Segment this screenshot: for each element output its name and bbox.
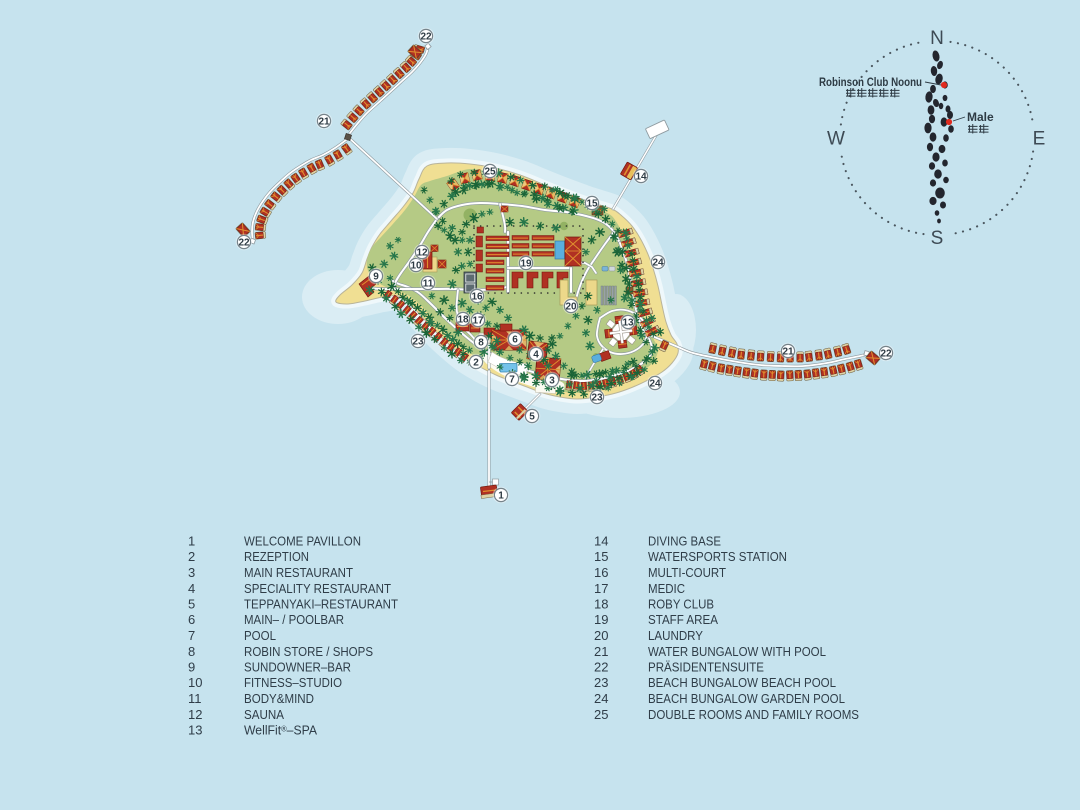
svg-text:5: 5: [529, 411, 535, 422]
svg-text:1: 1: [188, 534, 195, 549]
svg-text:18: 18: [594, 597, 608, 612]
svg-text:WELCOME PAVILLON: WELCOME PAVILLON: [244, 534, 361, 549]
svg-text:1: 1: [498, 490, 504, 501]
svg-text:20: 20: [565, 301, 577, 312]
svg-text:2: 2: [188, 549, 195, 564]
svg-text:TEPPANYAKI–RESTAURANT: TEPPANYAKI–RESTAURANT: [244, 597, 398, 612]
svg-text:DOUBLE ROOMS AND FAMILY ROOMS: DOUBLE ROOMS AND FAMILY ROOMS: [648, 707, 859, 722]
svg-text:24: 24: [652, 257, 664, 268]
svg-text:12: 12: [188, 707, 202, 722]
svg-text:WellFit®–SPA: WellFit®–SPA: [244, 723, 317, 738]
svg-text:N: N: [930, 28, 944, 49]
svg-text:3: 3: [188, 565, 195, 580]
svg-text:13: 13: [188, 723, 202, 738]
svg-text:MAIN RESTAURANT: MAIN RESTAURANT: [244, 565, 353, 580]
svg-text:STAFF AREA: STAFF AREA: [648, 612, 718, 627]
svg-text:MAIN– / POOLBAR: MAIN– / POOLBAR: [244, 612, 344, 627]
svg-text:REZEPTION: REZEPTION: [244, 549, 309, 564]
svg-text:SPECIALITY RESTAURANT: SPECIALITY RESTAURANT: [244, 581, 391, 596]
svg-text:ROBIN STORE / SHOPS: ROBIN STORE / SHOPS: [244, 644, 373, 659]
svg-text:BODY&MIND: BODY&MIND: [244, 691, 314, 706]
svg-text:4: 4: [533, 349, 539, 360]
svg-text:22: 22: [594, 660, 608, 675]
svg-text:11: 11: [188, 691, 202, 706]
svg-text:8: 8: [188, 644, 195, 659]
svg-text:11: 11: [423, 278, 434, 289]
svg-text:PRÄSIDENTENSUITE: PRÄSIDENTENSUITE: [648, 660, 764, 675]
svg-text:W: W: [827, 129, 845, 150]
svg-text:22: 22: [880, 348, 892, 359]
svg-text:6: 6: [512, 334, 518, 345]
svg-text:23: 23: [594, 675, 608, 690]
svg-text:23: 23: [412, 336, 424, 347]
svg-text:22: 22: [420, 31, 432, 42]
svg-text:20: 20: [594, 628, 608, 643]
svg-text:14: 14: [594, 534, 608, 549]
svg-text:12: 12: [416, 247, 428, 258]
svg-text:17: 17: [594, 581, 608, 596]
svg-text:9: 9: [188, 660, 195, 675]
svg-text:17: 17: [472, 315, 484, 326]
svg-text:ROBY CLUB: ROBY CLUB: [648, 597, 714, 612]
svg-text:WATER BUNGALOW WITH POOL: WATER BUNGALOW WITH POOL: [648, 644, 826, 659]
svg-text:25: 25: [594, 707, 608, 722]
svg-text:4: 4: [188, 581, 195, 596]
svg-text:22: 22: [238, 237, 250, 248]
svg-text:3: 3: [549, 375, 555, 386]
svg-text:10: 10: [188, 675, 202, 690]
svg-text:2: 2: [473, 357, 479, 368]
svg-text:18: 18: [457, 314, 469, 325]
svg-text:21: 21: [782, 346, 794, 357]
svg-text:23: 23: [591, 392, 603, 403]
svg-text:13: 13: [622, 317, 634, 328]
svg-text:S: S: [931, 228, 944, 249]
svg-text:9: 9: [373, 271, 379, 282]
svg-text:SUNDOWNER–BAR: SUNDOWNER–BAR: [244, 660, 351, 675]
svg-text:25: 25: [484, 166, 496, 177]
svg-text:10: 10: [410, 260, 422, 271]
svg-text:BEACH BUNGALOW BEACH POOL: BEACH BUNGALOW BEACH POOL: [648, 675, 836, 690]
svg-text:7: 7: [188, 628, 195, 643]
svg-text:BEACH BUNGALOW GARDEN POOL: BEACH BUNGALOW GARDEN POOL: [648, 691, 845, 706]
svg-text:6: 6: [188, 612, 195, 627]
svg-text:Male: Male: [967, 110, 994, 124]
svg-text:21: 21: [318, 116, 330, 127]
svg-text:21: 21: [594, 644, 608, 659]
svg-text:MULTI-COURT: MULTI-COURT: [648, 565, 726, 580]
svg-text:19: 19: [594, 612, 608, 627]
svg-text:LAUNDRY: LAUNDRY: [648, 628, 703, 643]
svg-text:E: E: [1033, 129, 1046, 150]
svg-text:15: 15: [586, 198, 598, 209]
svg-text:WATERSPORTS STATION: WATERSPORTS STATION: [648, 549, 787, 564]
svg-text:14: 14: [635, 171, 647, 182]
svg-text:16: 16: [471, 291, 483, 302]
svg-text:24: 24: [594, 691, 608, 706]
svg-text:5: 5: [188, 597, 195, 612]
svg-text:DIVING BASE: DIVING BASE: [648, 534, 721, 549]
svg-text:FITNESS–STUDIO: FITNESS–STUDIO: [244, 675, 342, 690]
svg-text:Robinson Club Noonu: Robinson Club Noonu: [819, 75, 922, 89]
svg-text:19: 19: [520, 258, 532, 269]
svg-text:MEDIC: MEDIC: [648, 581, 685, 596]
svg-text:7: 7: [509, 374, 515, 385]
svg-text:24: 24: [649, 378, 661, 389]
svg-text:SAUNA: SAUNA: [244, 707, 284, 722]
svg-text:16: 16: [594, 565, 608, 580]
svg-text:15: 15: [594, 549, 608, 564]
svg-text:POOL: POOL: [244, 628, 276, 643]
svg-text:8: 8: [478, 337, 484, 348]
